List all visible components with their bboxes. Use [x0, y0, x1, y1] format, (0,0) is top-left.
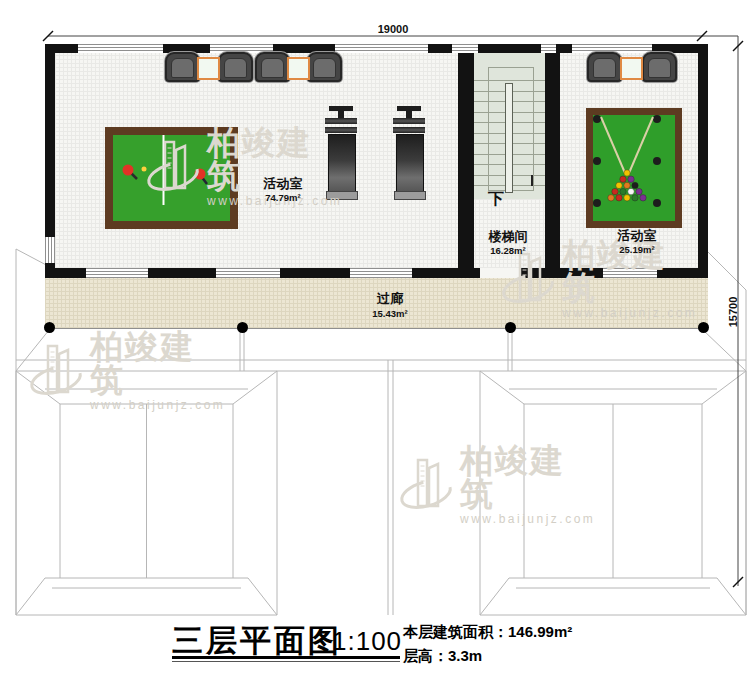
column-dot — [237, 322, 248, 333]
stair-handrail — [505, 83, 513, 193]
pool-ball — [616, 195, 622, 201]
gym-bar2 — [393, 127, 425, 133]
gym-equipment — [325, 106, 357, 198]
gym-base — [394, 191, 426, 200]
pool-table-graphics — [593, 115, 661, 207]
side-table — [620, 57, 643, 80]
wall-segment — [412, 268, 480, 278]
roof-outline — [703, 330, 746, 371]
window — [86, 268, 148, 278]
gym-body — [328, 134, 356, 193]
gym-equipment — [393, 106, 425, 198]
wall-segment — [458, 53, 474, 268]
column-dot — [698, 322, 709, 333]
roof-outline — [16, 371, 60, 404]
window — [603, 268, 657, 278]
window — [541, 44, 556, 53]
floor-area-text: 本层建筑面积：146.99m² — [403, 623, 572, 642]
drawing-scale: 1:100 — [332, 626, 402, 657]
pool-ball — [612, 188, 618, 194]
window — [45, 237, 55, 263]
title-underline-thin — [172, 661, 400, 662]
roof-outline — [702, 371, 746, 404]
door-opening — [480, 268, 520, 278]
gym-base — [326, 191, 358, 200]
chair-seat — [313, 58, 336, 78]
pool-ball — [624, 195, 630, 201]
ping-pong-table-graphics — [113, 135, 214, 205]
wall-segment — [545, 53, 560, 268]
window — [216, 268, 280, 278]
wall-segment — [148, 268, 216, 278]
column-dot — [44, 322, 55, 333]
pool-ball — [624, 182, 630, 188]
gym-bar2 — [325, 127, 357, 133]
roof-outline — [480, 578, 509, 615]
chair — [307, 52, 342, 82]
pool-ball — [636, 188, 642, 194]
roof-outline — [233, 371, 277, 404]
column-dot — [505, 322, 516, 333]
window — [78, 44, 163, 53]
window — [350, 268, 412, 278]
pool-ball — [632, 195, 638, 201]
room-area-stairwell: 16.28m² — [490, 245, 525, 256]
stairs — [474, 53, 545, 199]
roof-outline — [16, 330, 49, 371]
roof-outline — [16, 578, 45, 615]
roof-outline — [248, 578, 277, 615]
chair-seat — [648, 58, 671, 78]
pool-ball — [628, 176, 634, 182]
roof-outline — [717, 578, 746, 615]
room-label-stairwell: 楼梯间 — [489, 228, 528, 246]
room-label-activity-small: 活动室 — [618, 227, 657, 245]
ping-pong-table — [105, 127, 238, 229]
pool-table — [586, 108, 682, 228]
window — [335, 44, 428, 53]
wall-segment — [428, 44, 452, 53]
chair-seat — [224, 58, 247, 78]
roof-outline — [480, 371, 524, 404]
side-table — [197, 57, 220, 80]
room-label-corridor: 过廊 — [377, 290, 403, 308]
wall-segment — [45, 263, 55, 278]
dimension-height-label: 15700 — [727, 297, 739, 328]
room-area-activity-small: 25.19m² — [619, 244, 654, 255]
stair-arrow-mark — [531, 175, 533, 186]
gym-body — [396, 134, 424, 193]
wall-segment — [520, 268, 603, 278]
chair — [218, 52, 253, 82]
side-table — [287, 57, 310, 80]
gym-bar1 — [393, 118, 425, 124]
dimension-width-label: 19000 — [378, 23, 409, 35]
gym-bar1 — [325, 118, 357, 124]
chair-seat — [171, 58, 194, 78]
stairs-down-label: 下 — [488, 189, 504, 210]
title-underline — [172, 656, 400, 659]
chair — [165, 52, 200, 82]
wall-segment — [698, 44, 708, 278]
wall-segment — [556, 44, 572, 53]
floor-plan: 柏竣建筑 www.baijunjz.com 柏竣建筑 www.baijunjz.… — [0, 0, 750, 695]
room-area-corridor: 15.43m² — [372, 308, 407, 319]
wall-segment — [45, 44, 55, 237]
pool-ball — [620, 176, 626, 182]
roof-outline — [708, 252, 746, 290]
pool-ball — [608, 195, 614, 201]
pool-ball — [640, 195, 646, 201]
pool-ball — [628, 188, 634, 194]
pool-ball — [632, 182, 638, 188]
floor-height-text: 层高：3.3m — [403, 647, 482, 666]
wall-segment — [280, 268, 350, 278]
pool-ball — [624, 170, 630, 176]
window — [452, 44, 478, 53]
pool-ball — [620, 188, 626, 194]
pool-ball — [616, 182, 622, 188]
wall-segment — [478, 44, 541, 53]
chair — [587, 52, 622, 82]
room-area-activity-large: 74.79m² — [265, 192, 300, 203]
chair-seat — [593, 58, 616, 78]
chair-seat — [261, 58, 284, 78]
room-label-activity-large: 活动室 — [264, 175, 303, 193]
chair — [642, 52, 677, 82]
chair — [255, 52, 290, 82]
